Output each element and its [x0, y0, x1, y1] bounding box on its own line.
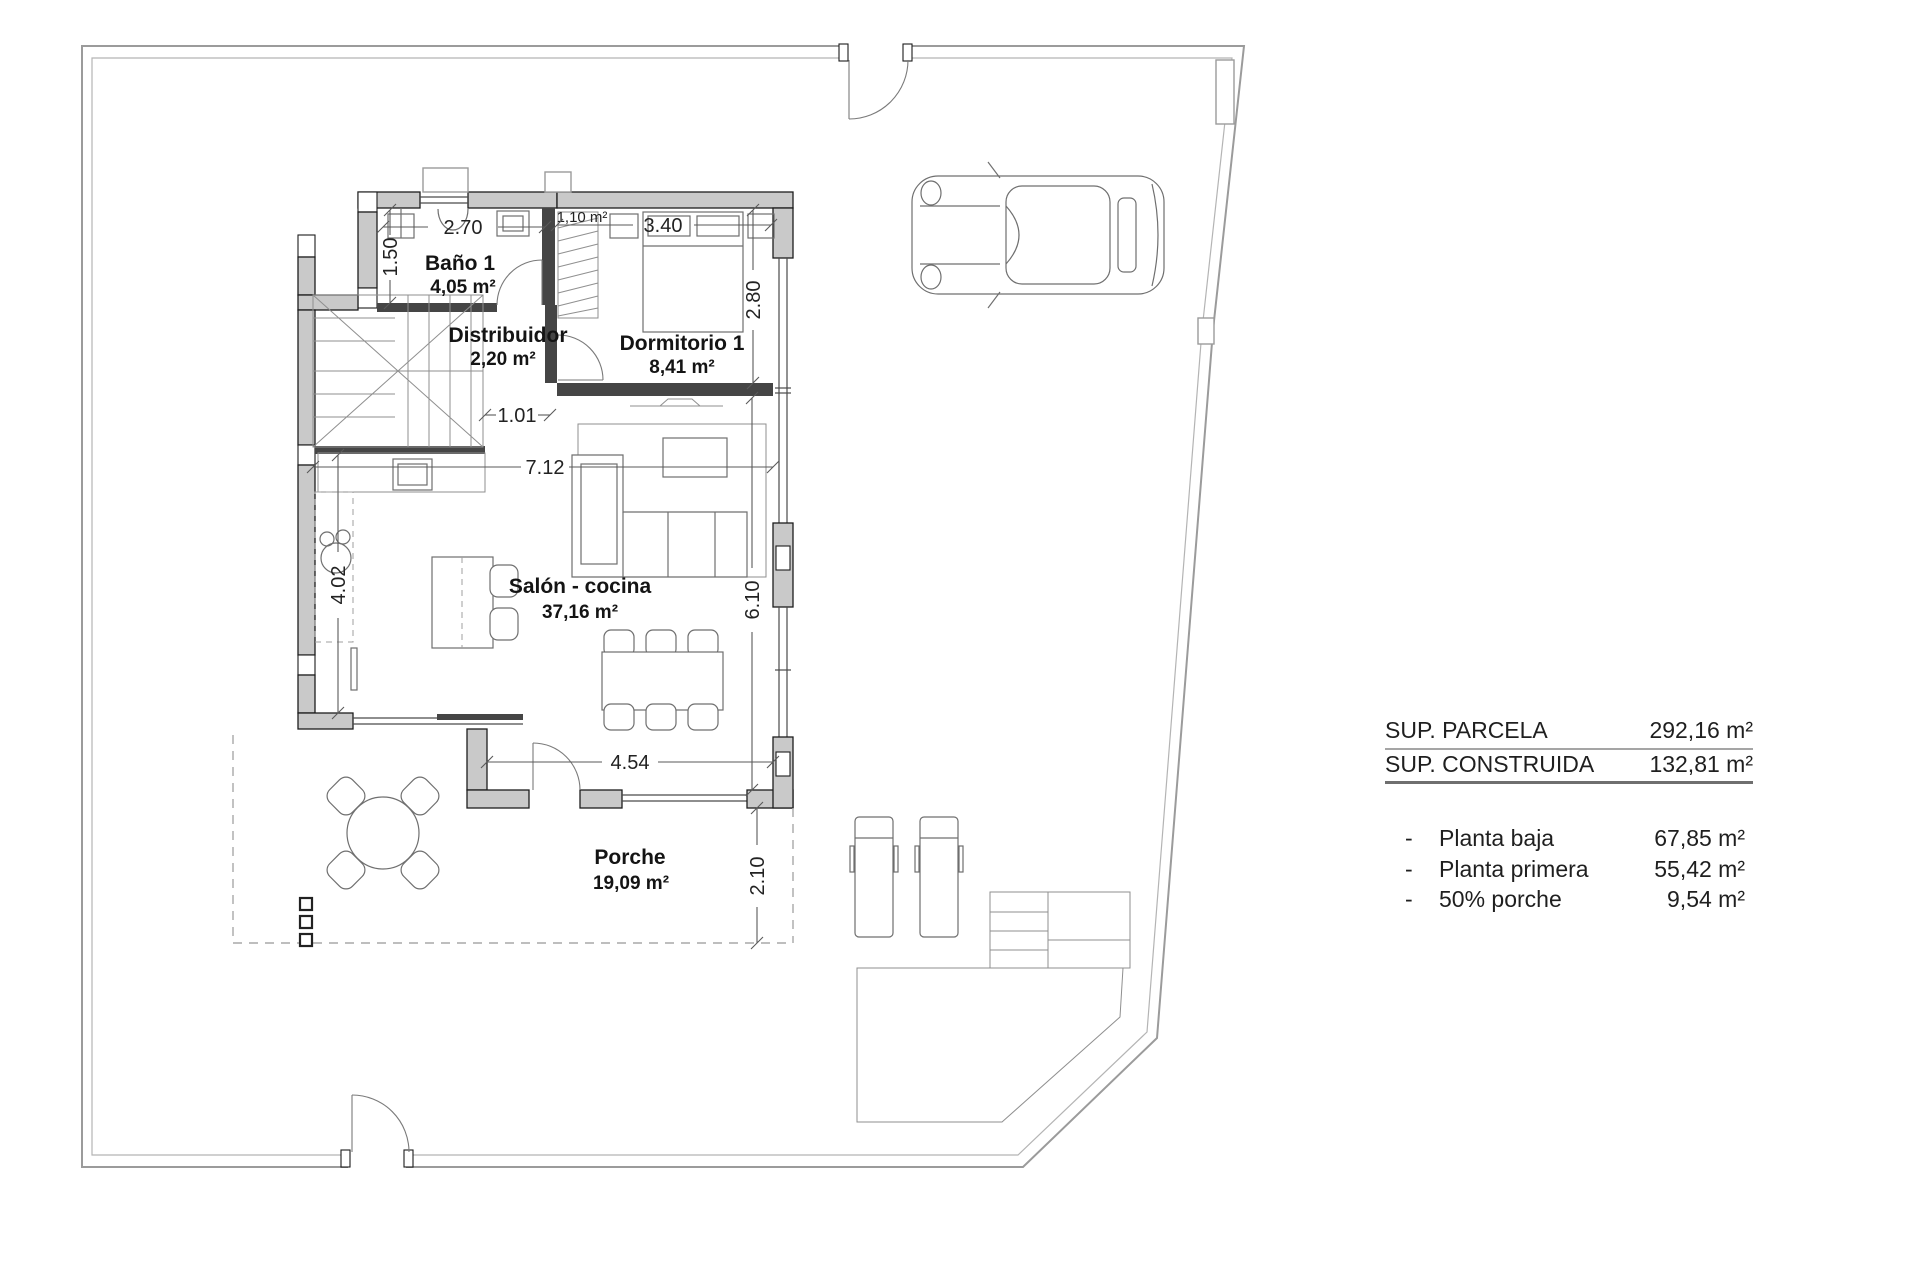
planter-squares	[300, 898, 312, 946]
summary-label: SUP. PARCELA	[1385, 717, 1548, 745]
dim-distribuidor-width: 1.01	[479, 405, 556, 427]
porch-table-set	[323, 773, 442, 892]
tv-shelf	[630, 399, 723, 406]
porch-table	[347, 797, 419, 869]
bullet-dash: -	[1385, 825, 1439, 853]
dim-bano-depth: 1.50	[380, 204, 402, 309]
summary-label: 50% porche	[1439, 886, 1667, 914]
dim-label: 7.12	[526, 457, 565, 479]
dining-table	[602, 652, 723, 710]
nightstand	[610, 214, 638, 238]
dim-label: 1.01	[498, 405, 537, 427]
surface-summary: SUP. PARCELA 292,16 m² SUP. CONSTRUIDA 1…	[1385, 716, 1753, 917]
bullet-dash: -	[1385, 886, 1439, 914]
dim-porche-depth: 2.10	[747, 802, 769, 949]
summary-row-construida: SUP. CONSTRUIDA 132,81 m²	[1385, 750, 1753, 785]
pool-steps	[990, 892, 1130, 968]
closet-hatch	[558, 212, 598, 318]
summary-label: SUP. CONSTRUIDA	[1385, 751, 1594, 779]
dining-chair	[688, 704, 718, 730]
room-label-salon: Salón - cocina	[509, 575, 652, 598]
dim-label: 2.10	[747, 857, 769, 896]
summary-label: Planta baja	[1439, 825, 1654, 853]
bathroom-wall	[377, 303, 497, 312]
room-area-bano: 4,05 m²	[430, 277, 495, 298]
summary-label: Planta primera	[1439, 856, 1654, 884]
sliding-window	[437, 714, 523, 720]
summary-row-planta-primera: - Planta primera 55,42 m²	[1385, 856, 1753, 884]
bathroom-wall	[542, 208, 555, 305]
summary-value: 292,16 m²	[1649, 717, 1753, 745]
dim-label: 4.54	[611, 752, 650, 774]
dim-dormitorio-depth: 2.80	[743, 204, 765, 389]
entrance-gate-top	[839, 44, 912, 119]
entrance-gate-bottom	[341, 1095, 413, 1167]
dim-label: 3.40	[644, 215, 683, 237]
room-area-porche: 19,09 m²	[593, 873, 669, 894]
dim-label: 4.02	[328, 566, 350, 605]
porch-frame	[351, 648, 357, 690]
room-area-salon: 37,16 m²	[542, 602, 618, 623]
dining-chair	[604, 704, 634, 730]
dim-label: 2.80	[743, 281, 765, 320]
summary-row-planta-baja: - Planta baja 67,85 m²	[1385, 825, 1753, 853]
dim-label: 1.50	[380, 238, 402, 277]
stool	[490, 608, 518, 640]
room-label-distribuidor: Distribuidor	[449, 324, 568, 347]
dim-label: 2.70	[444, 217, 483, 239]
room-area-distribuidor: 2,20 m²	[470, 349, 535, 370]
room-label-dormitorio: Dormitorio 1	[620, 332, 745, 355]
sun-lounger	[850, 817, 898, 937]
porch-chair	[323, 847, 368, 892]
staircase	[313, 295, 483, 447]
window-sill	[545, 172, 571, 192]
bathroom-door	[497, 260, 542, 305]
room-area-dormitorio: 8,41 m²	[649, 357, 714, 378]
bullet-dash: -	[1385, 856, 1439, 884]
dining-chair	[646, 704, 676, 730]
bedroom-wall	[557, 383, 773, 396]
porch-outline	[233, 735, 793, 943]
car	[912, 162, 1164, 308]
summary-value: 132,81 m²	[1649, 751, 1753, 779]
plot-pilaster	[1216, 60, 1234, 124]
summary-row-parcela: SUP. PARCELA 292,16 m²	[1385, 716, 1753, 750]
floor-plan-page: { "plan": { "rooms": [ {"name": "Baño 1"…	[0, 0, 1920, 1280]
dim-salon-left-depth: 4.02	[328, 449, 350, 719]
dim-label: 6.10	[742, 581, 764, 620]
porch-chair	[397, 847, 442, 892]
summary-value: 55,42 m²	[1654, 856, 1753, 884]
summary-value: 67,85 m²	[1654, 825, 1753, 853]
room-label-bano: Baño 1	[425, 252, 495, 275]
closet-area-label: 1,10 m²	[557, 209, 608, 226]
summary-gap	[1385, 784, 1753, 822]
summary-row-porche: - 50% porche 9,54 m²	[1385, 886, 1753, 914]
dim-salon-right-depth: 6.10	[742, 392, 764, 796]
dim-porche-width: 4.54	[481, 752, 779, 774]
porch-chair	[323, 773, 368, 818]
porch-door	[533, 743, 580, 790]
coffee-table	[663, 438, 727, 477]
plot-pilaster	[1198, 318, 1214, 344]
dining-set	[602, 630, 723, 730]
sun-lounger	[915, 817, 963, 937]
floor-plan-canvas: 2.70 1.50 1,10 m² 3.40 2.80 1.01	[0, 0, 1920, 1280]
room-label-porche: Porche	[594, 846, 665, 869]
kitchen-island	[432, 557, 518, 648]
summary-value: 9,54 m²	[1667, 886, 1753, 914]
toilet	[497, 211, 529, 236]
window-sill	[423, 168, 468, 192]
porch-chair	[397, 773, 442, 818]
